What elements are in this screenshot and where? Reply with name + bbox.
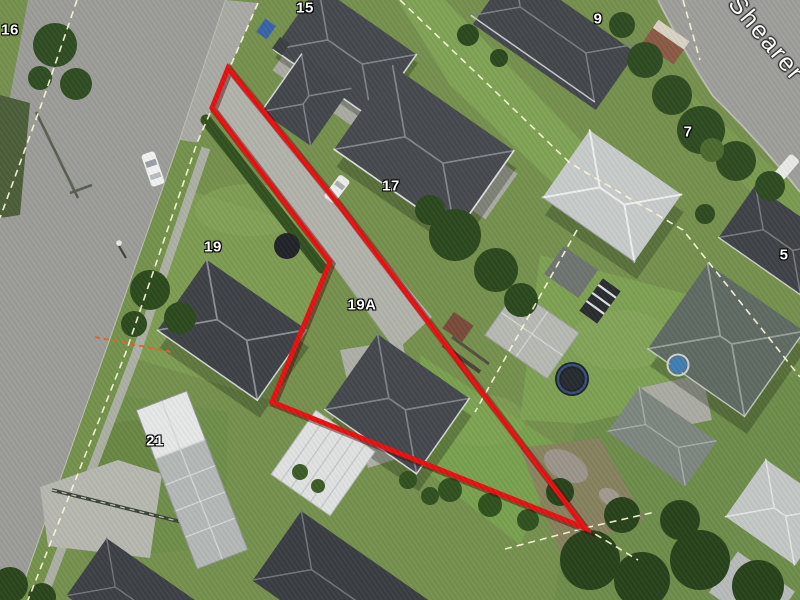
dark-round-object-19 [274,233,300,259]
aerial-map[interactable]: 16 15 9 17 19 19A 21 7 5 Shearer [0,0,800,600]
paddling-pool [668,355,689,376]
map-canvas [0,0,800,600]
trampoline [555,362,589,396]
